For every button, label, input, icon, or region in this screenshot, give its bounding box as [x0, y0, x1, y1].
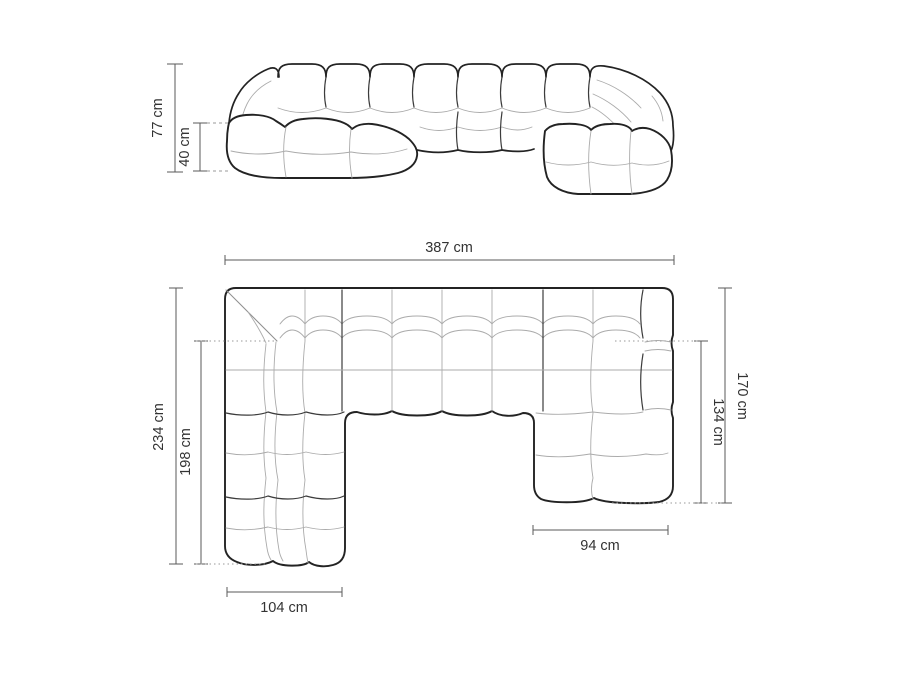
plan-view: 387 cm 234 cm 198 cm 170 cm [151, 240, 750, 616]
dim-right-depth-label: 170 cm [734, 372, 750, 420]
dim-left-chaise-width-label: 104 cm [260, 600, 308, 616]
dim-total-height-label: 77 cm [150, 98, 166, 138]
dim-left-depth: 234 cm [151, 288, 183, 564]
dim-base-height: 40 cm [177, 123, 229, 171]
front-right-chaise [544, 124, 672, 194]
diagram-canvas: 77 cm 40 cm [0, 0, 900, 675]
dim-right-inner-depth-label: 134 cm [710, 398, 726, 446]
dim-base-height-label: 40 cm [177, 127, 193, 167]
front-seat-scallops [420, 127, 532, 131]
front-sofa-drawing [227, 64, 674, 194]
front-tuft-seams [325, 77, 591, 107]
front-left-chaise [227, 115, 417, 178]
plan-sofa-drawing [225, 288, 673, 566]
front-right-corner-tufts [592, 80, 663, 130]
dim-total-width: 387 cm [225, 240, 674, 265]
dim-right-chaise-width: 94 cm [533, 525, 668, 554]
dim-left-chaise-width: 104 cm [227, 587, 342, 616]
dim-total-width-label: 387 cm [425, 240, 473, 256]
front-seat-base [417, 149, 534, 152]
front-seat-seams [457, 112, 503, 150]
dim-right-depth: 170 cm [718, 288, 750, 503]
sofa-dimension-diagram: 77 cm 40 cm [0, 0, 900, 675]
front-cushion-scallops [278, 108, 590, 113]
dim-right-chaise-width-label: 94 cm [580, 538, 620, 554]
dim-left-inner-depth-label: 198 cm [178, 428, 194, 476]
dim-left-depth-label: 234 cm [151, 403, 167, 451]
front-view: 77 cm 40 cm [150, 64, 674, 194]
